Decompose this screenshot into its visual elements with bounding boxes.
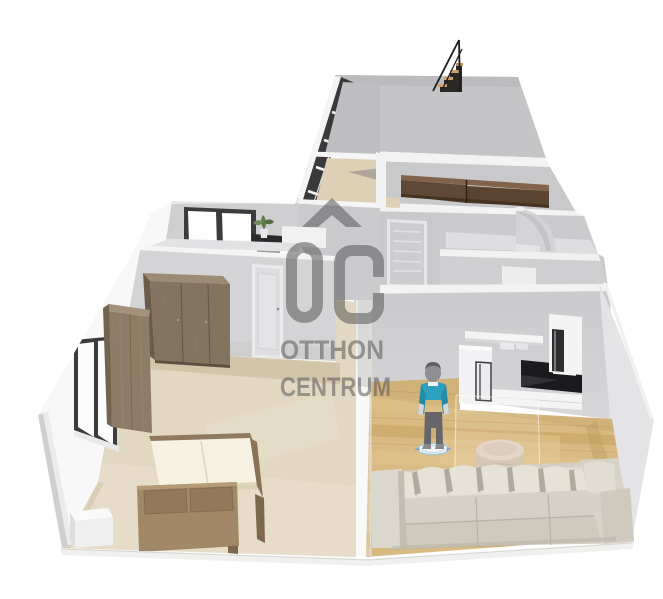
svg-text:OTTHON: OTTHON (280, 335, 384, 365)
svg-text:CENTRUM: CENTRUM (280, 372, 391, 402)
